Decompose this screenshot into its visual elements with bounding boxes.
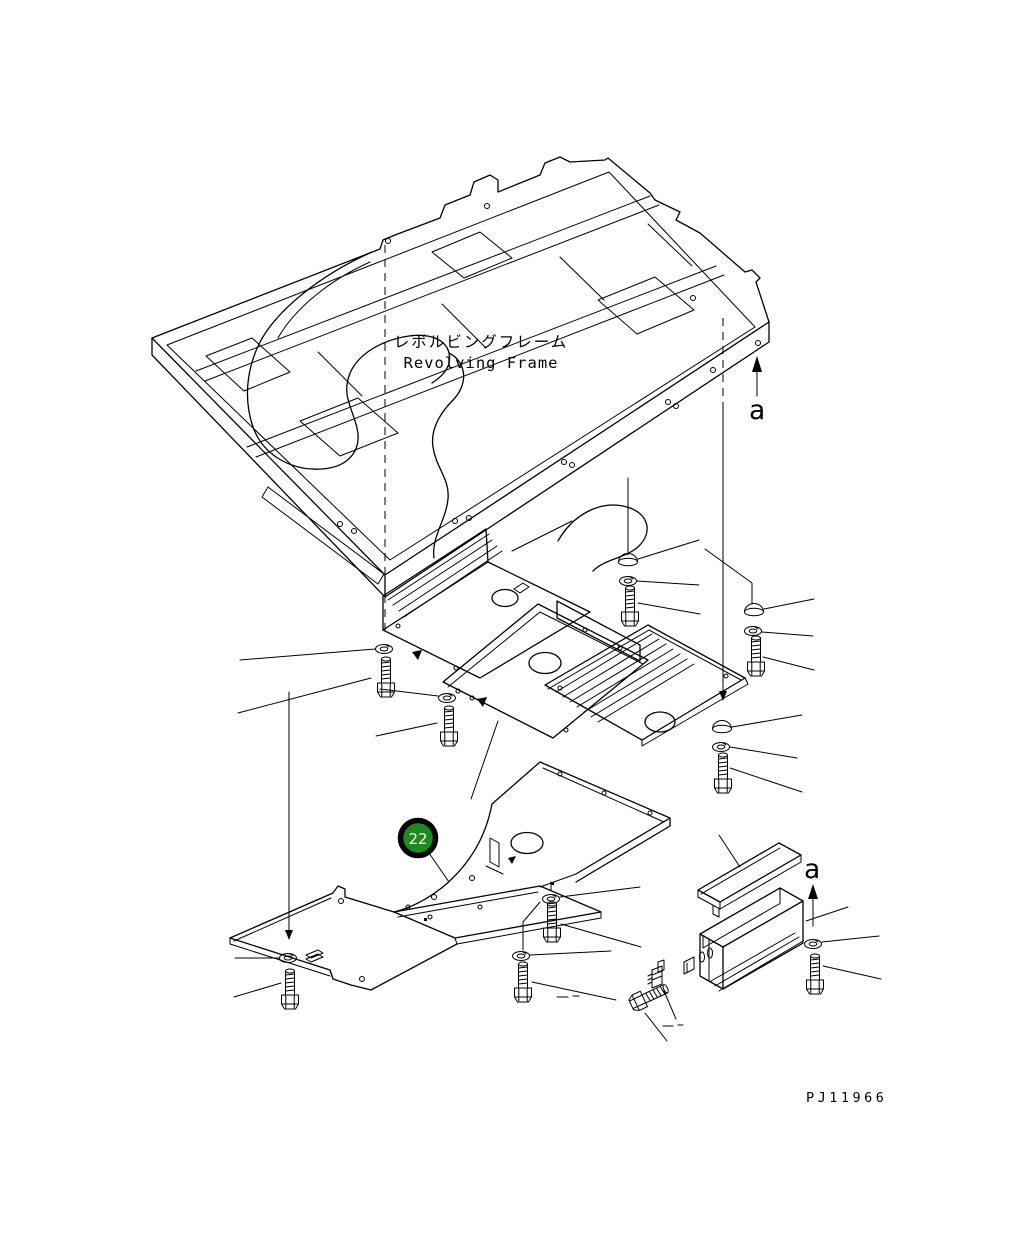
bolt-left-lower (441, 706, 458, 746)
washer-right-upper (745, 627, 762, 636)
clip-fastener (648, 960, 664, 988)
leader-lines-box (645, 835, 881, 1041)
box-cover-body (684, 888, 803, 991)
bolt-bottom-mid-lower (515, 962, 532, 1002)
bolt-bottom-left (282, 969, 299, 1009)
plug-right-upper (745, 604, 764, 616)
frame-label-japanese: レボルビングフレーム (394, 333, 569, 351)
callout-22-number: 22 (408, 830, 427, 848)
washer-bottom-mid-lower (513, 952, 530, 961)
ribbed-cover-plate (545, 625, 748, 746)
exploded-parts-drawing: レボルビングフレーム Revolving Frame a (0, 0, 1025, 1252)
frame-label-english: Revolving Frame (404, 354, 559, 372)
center-cover-plate (443, 601, 648, 738)
drawing-number: PJ11966 (806, 1090, 887, 1106)
bolt-right-lower (715, 753, 732, 793)
washer-left-upper (376, 645, 393, 654)
lower-cover-right-plate (486, 762, 670, 882)
parts-diagram-page: レボルビングフレーム Revolving Frame a (0, 0, 1025, 1252)
washer-top-middle (620, 577, 637, 586)
section-arrow-a-top (752, 356, 762, 396)
callout-22[interactable]: 22 (401, 821, 436, 856)
section-label-a-bottom: a (804, 854, 820, 885)
bolt-box-right (807, 954, 824, 994)
lower-cover-22-plate (394, 874, 601, 944)
bolt-left-upper (378, 657, 395, 697)
bolt-right-upper (748, 636, 765, 676)
bolt-horizontal (628, 980, 671, 1012)
callout-22-leader (429, 853, 449, 882)
section-label-a-top: a (749, 395, 765, 426)
lower-cover-left-plate (230, 886, 457, 990)
washer-box-right (805, 940, 822, 949)
washer-left-lower (439, 694, 456, 703)
leader-lines-lower (234, 882, 683, 1026)
bolt-top-middle (622, 586, 639, 626)
plug-right-lower (713, 721, 732, 733)
washer-right-lower (713, 743, 730, 752)
